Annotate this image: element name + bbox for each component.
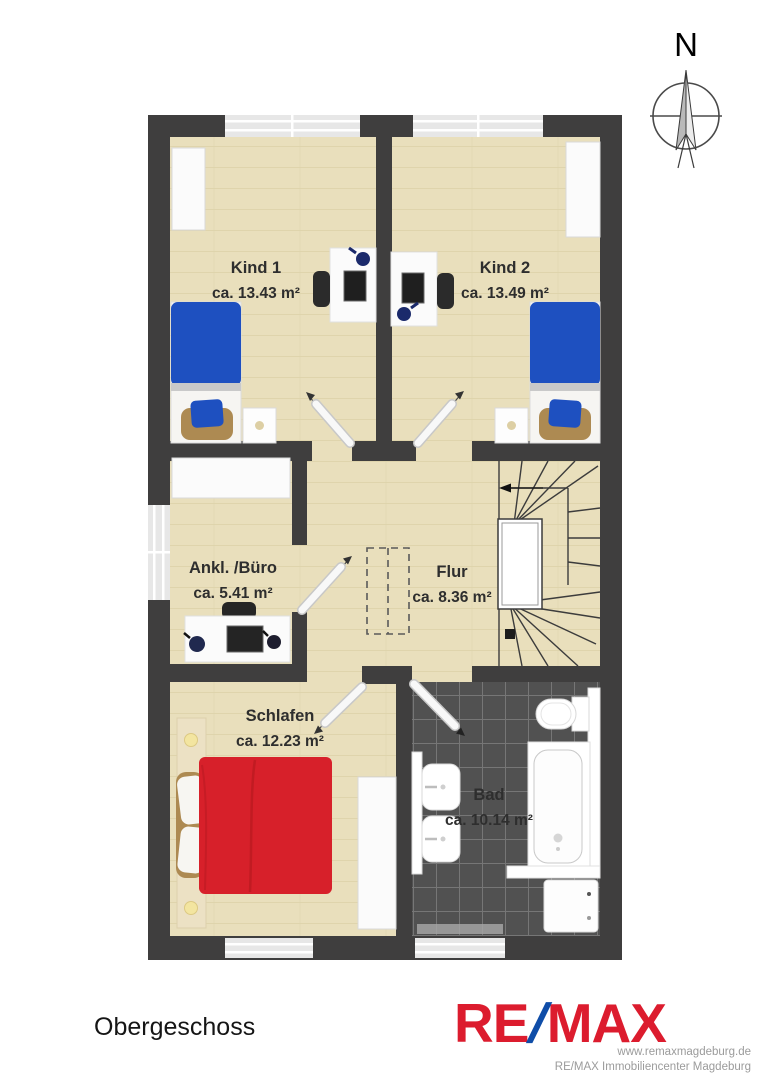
room-area: ca. 12.23 m² (236, 730, 324, 754)
room-name: Bad (445, 783, 533, 809)
remax-logo: RE/MAX (454, 996, 666, 1051)
logo-max: MAX (547, 992, 666, 1054)
nightstand-kind2 (495, 408, 528, 443)
room-name: Kind 1 (212, 256, 300, 282)
compass-north-label: N (674, 26, 698, 64)
tub-shelf (507, 866, 600, 878)
room-label-kind2: Kind 2 ca. 13.49 m² (461, 256, 549, 306)
floor-title: Obergeschoss (94, 1013, 255, 1042)
wardrobe-kind1 (172, 148, 205, 230)
lamp-icon (185, 734, 198, 747)
toilet (536, 697, 589, 731)
bathtub (528, 742, 590, 874)
room-name: Kind 2 (461, 256, 549, 282)
bed-kind1 (171, 302, 241, 443)
room-label-ankl-buero: Ankl. /Büro ca. 5.41 m² (189, 556, 277, 606)
wardrobe-kind2 (566, 142, 600, 237)
floorplan-drawing (0, 0, 763, 1080)
bathroom-window-recess (417, 924, 503, 934)
website-link[interactable]: www.remaxmagdeburg.de (617, 1046, 751, 1058)
room-area: ca. 13.43 m² (212, 282, 300, 306)
window-left (148, 505, 170, 600)
room-label-schlafen: Schlafen ca. 12.23 m² (236, 704, 324, 754)
room-area: ca. 8.36 m² (412, 586, 491, 610)
room-label-bad: Bad ca. 10.14 m² (445, 783, 533, 833)
floorplan-page: N Kind 1 ca. 13.43 m² Kind 2 ca. 13.49 m… (0, 0, 763, 1080)
window-top-left (225, 115, 360, 137)
stair-void (498, 519, 542, 609)
vanity (412, 752, 422, 874)
logo-re: RE (454, 992, 528, 1054)
wardrobe-buero (172, 458, 290, 498)
wardrobe-schlafen (358, 777, 396, 929)
room-area: ca. 5.41 m² (189, 582, 277, 606)
compass-icon (650, 70, 722, 168)
room-label-flur: Flur ca. 8.36 m² (412, 560, 491, 610)
washer (544, 880, 598, 932)
room-label-kind1: Kind 1 ca. 13.43 m² (212, 256, 300, 306)
nightstand-kind1 (243, 408, 276, 443)
window-bottom-right (415, 938, 505, 958)
room-area: ca. 13.49 m² (461, 282, 549, 306)
bed-kind2 (530, 302, 600, 443)
company-name: RE/MAX Immobiliencenter Magdeburg (555, 1061, 751, 1073)
bed-schlafen (176, 757, 332, 894)
room-name: Flur (412, 560, 491, 586)
room-name: Ankl. /Büro (189, 556, 277, 582)
room-name: Schlafen (236, 704, 324, 730)
lamp-icon (185, 902, 198, 915)
window-top-right (413, 115, 543, 137)
room-area: ca. 10.14 m² (445, 809, 533, 833)
window-bottom-left (225, 938, 313, 958)
logo-slash-icon: / (528, 996, 548, 1051)
